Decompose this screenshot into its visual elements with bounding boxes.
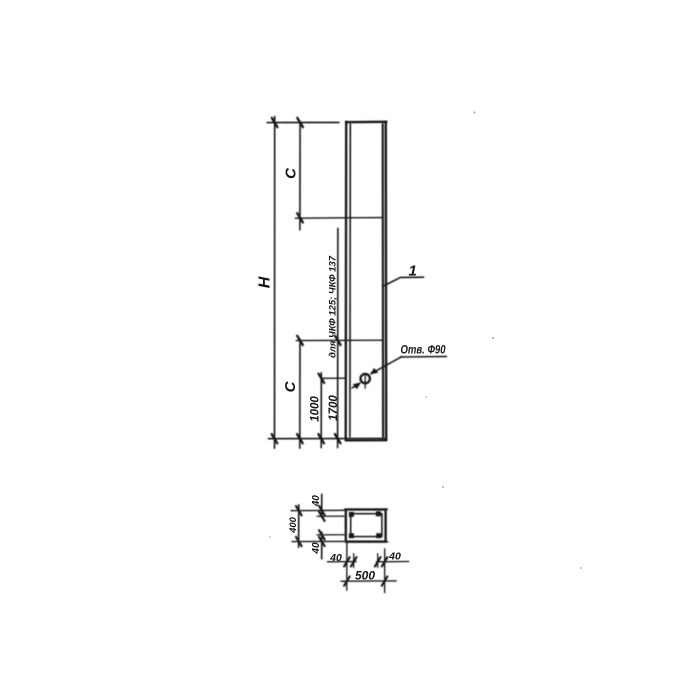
svg-text:Отв. Ф90: Отв. Ф90 [401, 343, 446, 357]
svg-text:500: 500 [355, 569, 375, 583]
svg-text:40: 40 [311, 542, 322, 555]
svg-text:40: 40 [388, 551, 401, 563]
svg-text:40: 40 [329, 552, 342, 564]
svg-text:C: C [282, 380, 299, 392]
svg-text:1700: 1700 [328, 395, 340, 421]
svg-text:1000: 1000 [310, 396, 322, 422]
svg-text:400: 400 [288, 516, 299, 534]
svg-text:H: H [257, 276, 274, 288]
svg-text:C: C [283, 167, 300, 179]
svg-text:40: 40 [311, 495, 322, 508]
svg-text:1: 1 [409, 263, 417, 280]
svg-text:для ЧКФ 125; ЧКФ 137: для ЧКФ 125; ЧКФ 137 [328, 255, 339, 358]
